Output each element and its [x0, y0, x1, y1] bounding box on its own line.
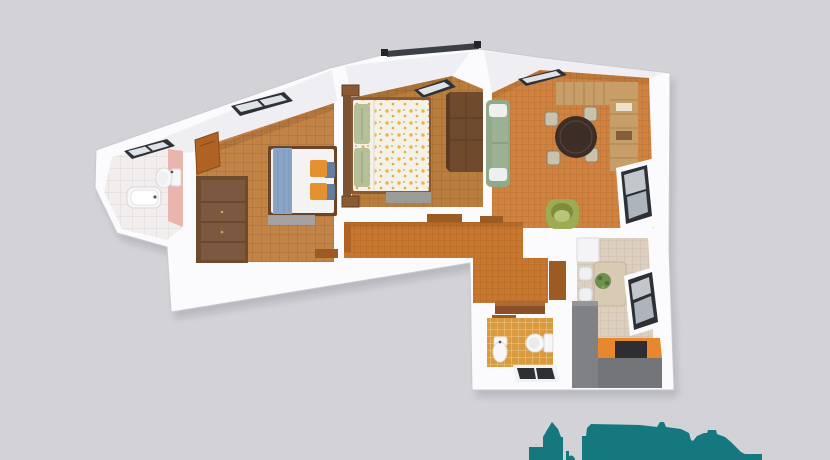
bedroom-1-rug [268, 215, 315, 225]
door-threshold [427, 214, 462, 222]
kitchen-chair [579, 288, 592, 301]
orange-pillow [310, 160, 327, 177]
bathtub [127, 187, 161, 208]
bedroom-2-nightstand [342, 196, 359, 207]
bedroom-2-rug [386, 192, 431, 203]
round-dining-table [555, 116, 597, 158]
table-plant [595, 273, 611, 289]
bedroom-2-nightstand [342, 85, 359, 96]
door-threshold [480, 216, 503, 223]
bedroom-1-double-bed [268, 146, 337, 216]
living-dining-room [486, 69, 660, 236]
green-armchair [546, 199, 579, 229]
sofa-pillow [489, 168, 507, 181]
wc-skylight-window [513, 365, 559, 382]
kitchen-wall-window [624, 266, 663, 336]
dining-chair [545, 112, 558, 126]
bathroom-pink-wall [168, 149, 183, 227]
bedroom-2-wardrobe [446, 92, 483, 172]
kitchen-open-door [549, 261, 566, 300]
kitchen-chair [579, 267, 592, 280]
dining-chair [547, 151, 560, 165]
kitchen-white-cabinet [577, 238, 599, 262]
wc-toilet [526, 334, 553, 352]
hallway-open-door [344, 224, 351, 252]
floor-plan-render [0, 0, 830, 460]
bedroom-2 [342, 76, 483, 207]
hallway-low-cabinet [495, 301, 545, 314]
wc-bidet [493, 337, 507, 362]
bedroom-1-door-threshold [315, 249, 338, 258]
bathroom-toilet [156, 168, 181, 188]
kitchen-counter-front [598, 358, 662, 388]
green-sofa [486, 100, 510, 187]
headboard [343, 96, 351, 196]
kitchen-appliance [615, 341, 647, 358]
bedroom-1-open-door [195, 132, 220, 174]
bedroom-1-wardrobe [196, 176, 248, 263]
orange-pillow [310, 183, 327, 200]
bedroom-2-double-bed [343, 96, 431, 196]
living-room-wall-window [616, 158, 660, 236]
sofa-pillow [489, 104, 507, 117]
